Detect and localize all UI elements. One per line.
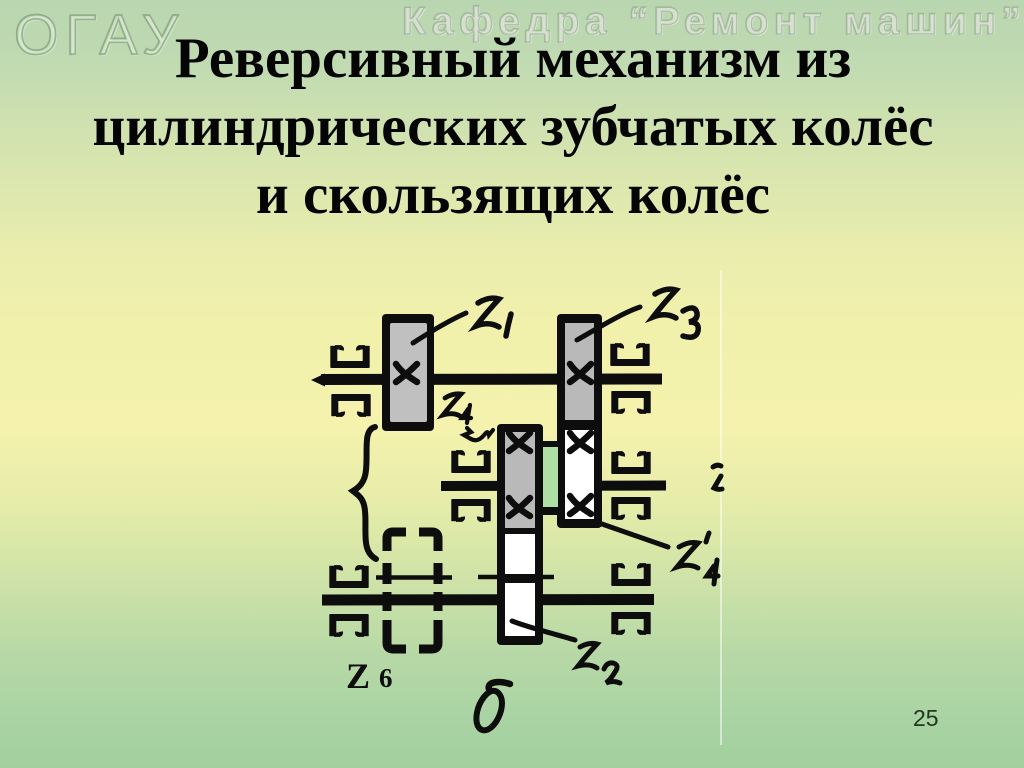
svg-text:Z: Z <box>346 656 370 696</box>
svg-text:6: 6 <box>379 663 393 693</box>
